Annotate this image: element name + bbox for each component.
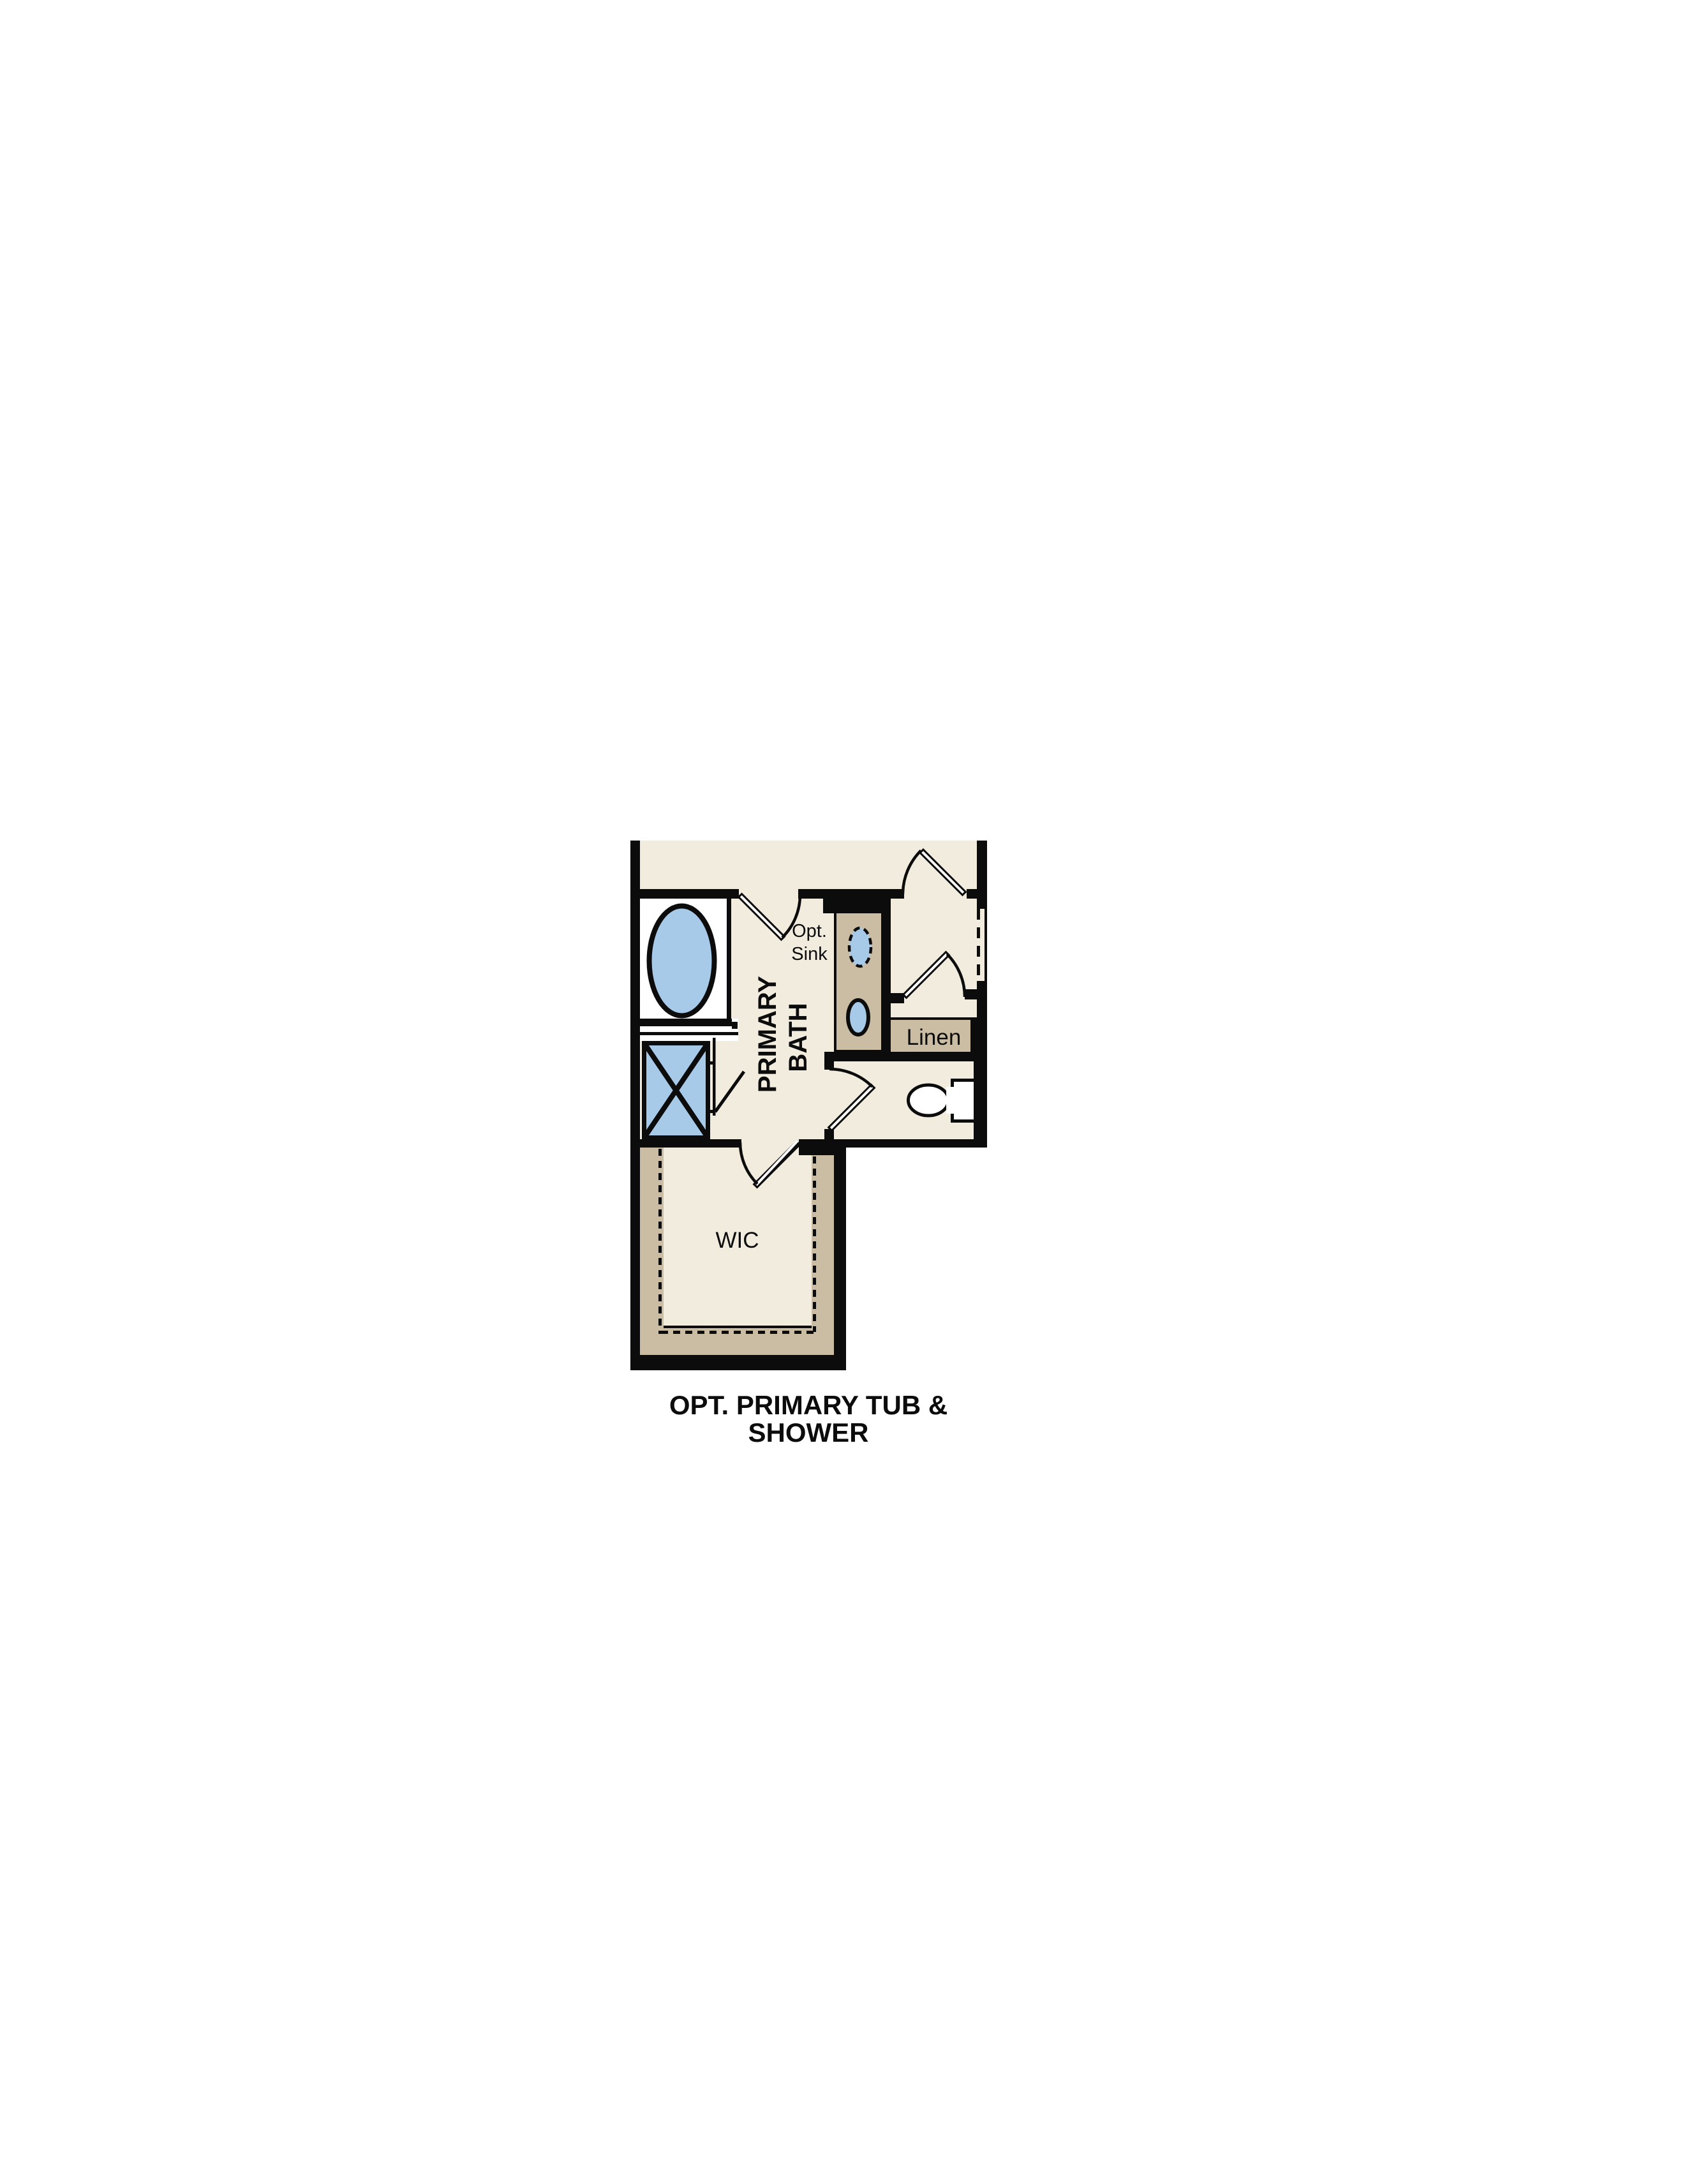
svg-text:SHOWER: SHOWER	[748, 1417, 869, 1447]
svg-text:WIC: WIC	[715, 1228, 759, 1253]
svg-text:PRIMARY: PRIMARY	[754, 976, 782, 1093]
svg-text:Opt.: Opt.	[792, 921, 827, 941]
svg-text:Sink: Sink	[791, 944, 828, 964]
svg-text:BATH: BATH	[784, 1003, 812, 1072]
svg-text:OPT. PRIMARY TUB &: OPT. PRIMARY TUB &	[669, 1390, 948, 1420]
svg-text:Linen: Linen	[907, 1025, 962, 1050]
